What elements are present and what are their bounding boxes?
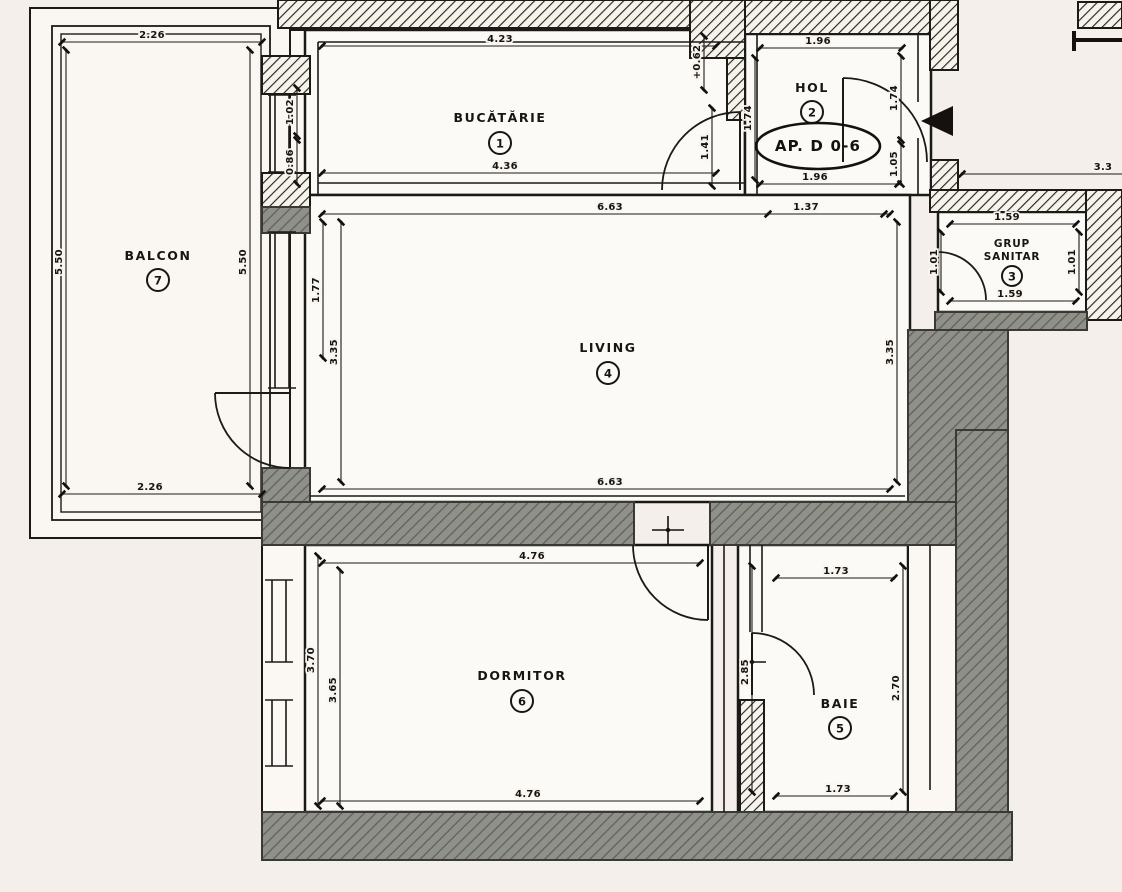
svg-text:1.73: 1.73 [823,566,849,577]
svg-text:4.76: 4.76 [515,789,541,800]
wall-strip-right-of-baie [908,545,956,812]
svg-text:1.73: 1.73 [825,784,851,795]
svg-text:1.74: 1.74 [743,105,754,131]
svg-text:1.74: 1.74 [889,85,900,111]
svg-text:3.70: 3.70 [306,647,317,673]
svg-text:1.05: 1.05 [889,151,900,177]
svg-text:1.02: 1.02 [285,99,296,125]
svg-text:2.85: 2.85 [740,659,751,685]
wall-balcony-junction-1 [262,56,310,94]
svg-text:3.35: 3.35 [329,339,340,365]
svg-text:1.41: 1.41 [700,134,711,160]
svg-text:AP. D 0-6: AP. D 0-6 [775,137,861,155]
svg-text:2: 2 [808,106,816,120]
svg-text:6.63: 6.63 [597,477,623,488]
svg-text:6.63: 6.63 [597,202,623,213]
wall-top-right-pillar [1078,2,1122,28]
svg-text:+0.62: +0.62 [692,45,703,80]
svg-text:2.70: 2.70 [891,675,902,701]
svg-text:4.23: 4.23 [487,34,513,45]
svg-text:1: 1 [496,137,504,151]
svg-text:3.35: 3.35 [885,339,896,365]
svg-text:0.86: 0.86 [285,149,296,175]
wall-living-dormitor-left [262,502,634,545]
svg-text:GRUP: GRUP [994,238,1030,250]
wall-hol-top [740,0,935,34]
svg-text:1.01: 1.01 [1067,249,1078,275]
svg-text:1.77: 1.77 [311,277,322,303]
floor-plan-drawing: 2.26 2.26 4.23 4.36 1.96 1.96 1.37 1.59 [0,0,1122,892]
wall-top-band [278,0,690,28]
svg-text:1.01: 1.01 [929,249,940,275]
wall-balcony-junction-3 [262,207,310,233]
room-hol-area [745,34,931,195]
svg-text:DORMITOR: DORMITOR [477,668,566,683]
svg-text:1.59: 1.59 [997,289,1023,300]
svg-text:4.36: 4.36 [492,161,518,172]
svg-text:1.59: 1.59 [994,212,1020,223]
svg-text:6: 6 [518,695,526,709]
wall-right-lower [956,430,1008,860]
svg-text:HOL: HOL [795,80,829,95]
svg-text:5: 5 [836,722,844,736]
wall-balcony-junction-2 [262,173,310,209]
dim-exterior-right: 3.3 [962,162,1122,174]
wall-bottom-band [262,812,1012,860]
svg-text:3.3: 3.3 [1094,162,1113,173]
svg-text:3: 3 [1008,270,1016,284]
svg-text:5.50: 5.50 [54,249,65,275]
svg-text:2.26: 2.26 [139,30,165,41]
top-right-bracket [1074,31,1122,51]
svg-text:LIVING: LIVING [579,340,636,355]
floor-plan: 2.26 2.26 4.23 4.36 1.96 1.96 1.37 1.59 [0,0,1122,892]
svg-text:BUCĂTĂRIE: BUCĂTĂRIE [454,110,547,125]
svg-text:7: 7 [154,274,162,288]
wall-hol-right-top [930,0,958,70]
wall-grup-right [1086,190,1122,320]
svg-text:5.50: 5.50 [238,249,249,275]
svg-text:1.37: 1.37 [793,202,819,213]
svg-text:1.96: 1.96 [805,36,831,47]
wall-grup-top [930,190,1088,212]
svg-text:BAIE: BAIE [821,696,860,711]
wall-below-grup [935,312,1087,330]
svg-text:4.76: 4.76 [519,551,545,562]
svg-text:2.26: 2.26 [137,482,163,493]
svg-text:1.96: 1.96 [802,172,828,183]
svg-text:BALCON: BALCON [124,248,191,263]
svg-text:SANITAR: SANITAR [984,251,1041,263]
svg-text:3.65: 3.65 [328,677,339,703]
svg-text:4: 4 [604,367,612,381]
